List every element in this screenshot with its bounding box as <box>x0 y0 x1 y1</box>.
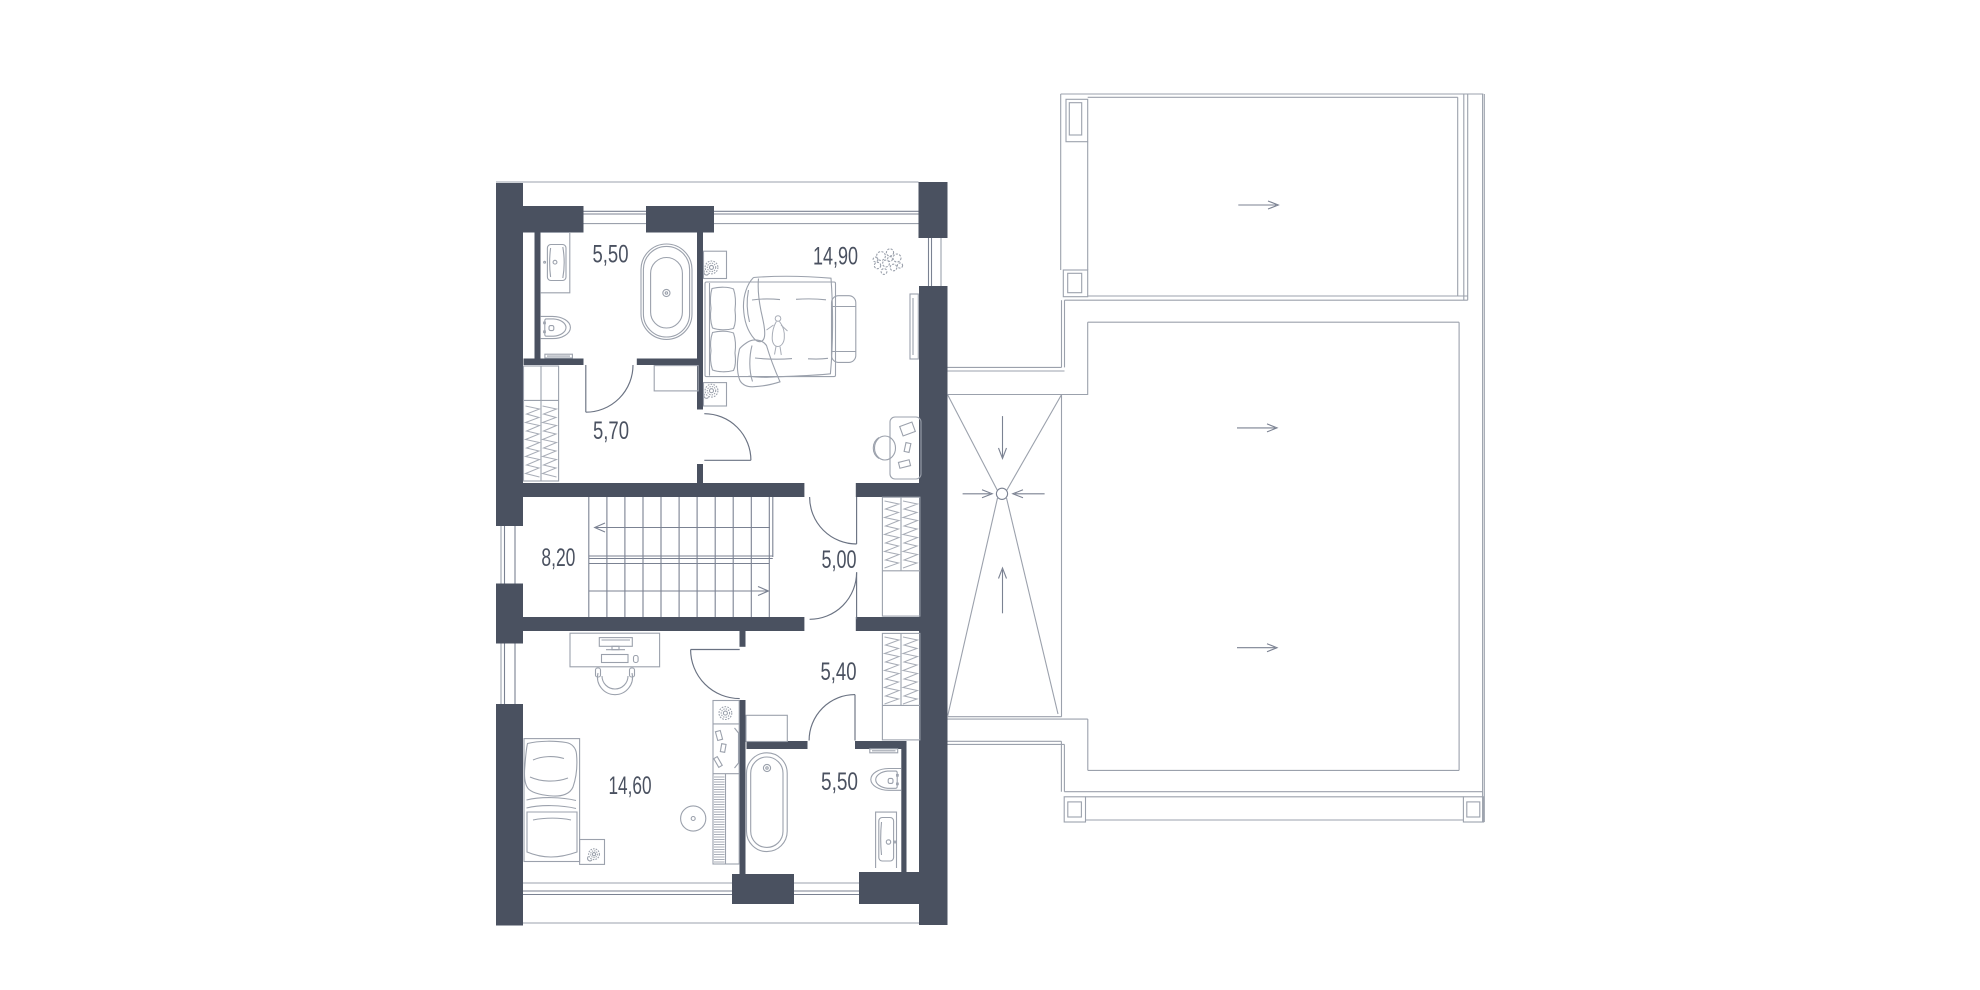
svg-text:14,90: 14,90 <box>813 243 858 271</box>
svg-text:5,00: 5,00 <box>822 546 857 574</box>
svg-text:14,60: 14,60 <box>609 772 652 800</box>
svg-text:5,40: 5,40 <box>821 658 857 686</box>
svg-text:5,70: 5,70 <box>593 417 629 445</box>
svg-text:5,50: 5,50 <box>821 768 858 796</box>
svg-text:8,20: 8,20 <box>541 544 575 572</box>
svg-text:5,50: 5,50 <box>593 241 629 269</box>
